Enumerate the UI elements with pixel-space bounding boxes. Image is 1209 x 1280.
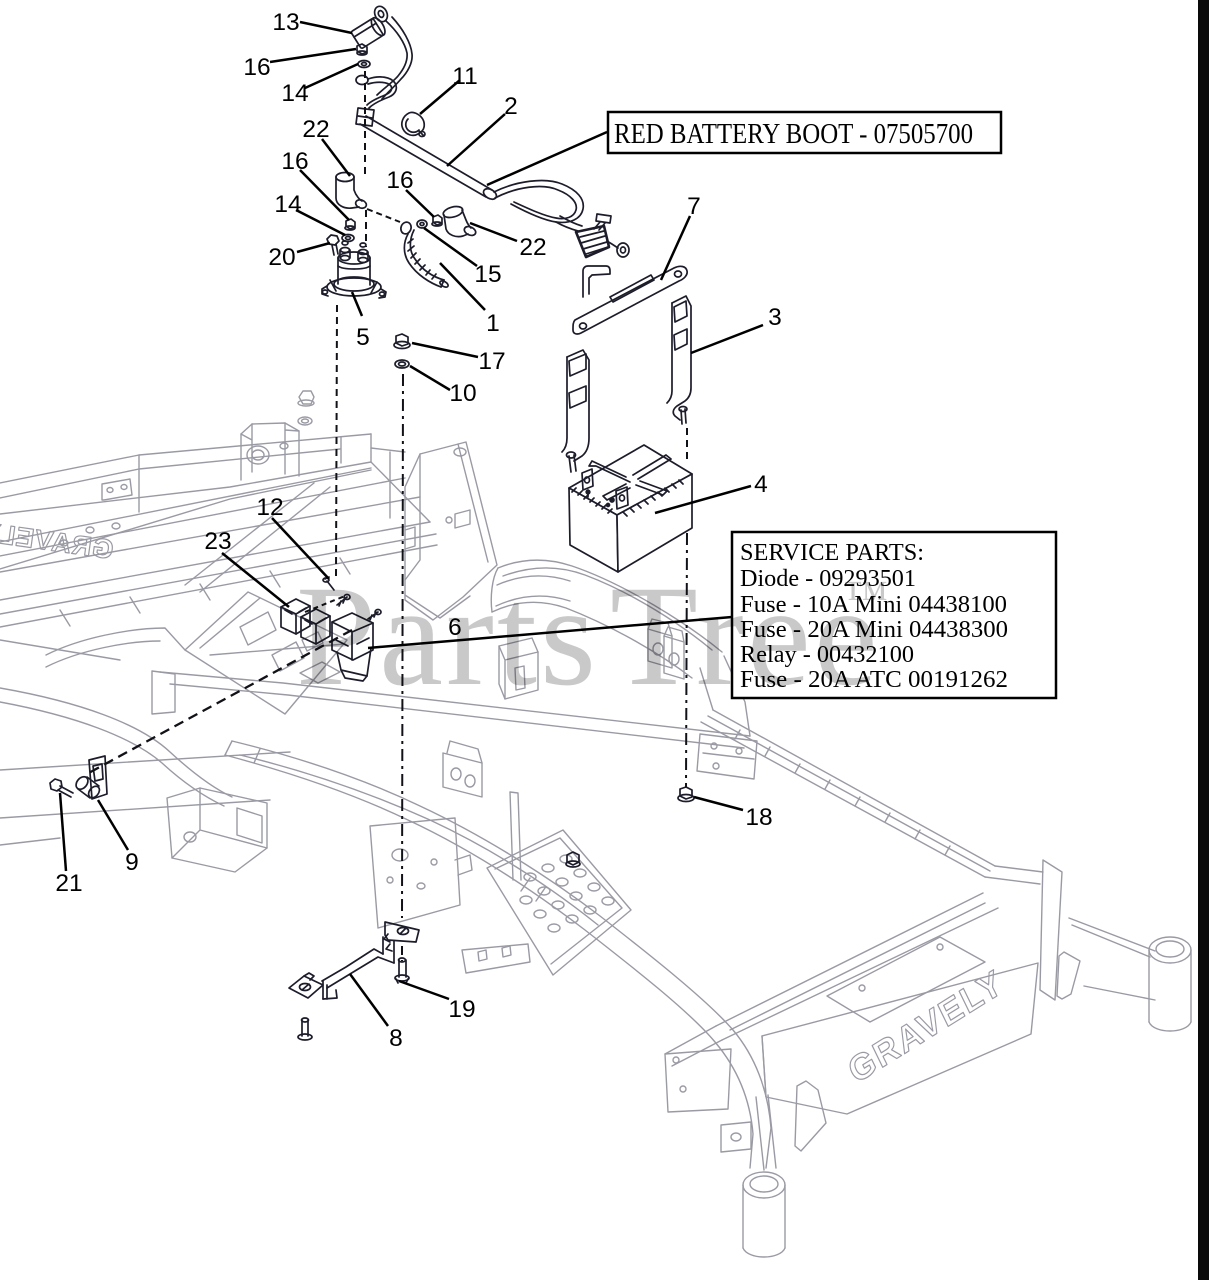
svg-text:11: 11 [452, 63, 477, 90]
svg-text:™: ™ [843, 571, 888, 622]
svg-text:22: 22 [302, 116, 329, 143]
svg-text:4: 4 [754, 471, 768, 498]
svg-text:RED BATTERY BOOT - 07505700: RED BATTERY BOOT - 07505700 [614, 118, 973, 150]
svg-text:10: 10 [449, 380, 476, 407]
svg-text:20: 20 [268, 244, 295, 271]
svg-text:8: 8 [389, 1025, 403, 1052]
svg-text:21: 21 [55, 870, 82, 897]
svg-text:13: 13 [272, 9, 299, 36]
svg-text:3: 3 [768, 304, 782, 331]
svg-text:Parts: Parts [296, 557, 599, 716]
svg-text:15: 15 [474, 261, 501, 288]
svg-text:16: 16 [281, 148, 308, 175]
svg-text:19: 19 [448, 996, 475, 1023]
svg-text:Tree: Tree [610, 557, 881, 716]
svg-text:18: 18 [745, 804, 772, 831]
svg-text:16: 16 [386, 167, 413, 194]
svg-text:1: 1 [486, 310, 500, 337]
svg-text:23: 23 [204, 528, 231, 555]
svg-text:22: 22 [519, 234, 546, 261]
svg-text:16: 16 [243, 54, 270, 81]
svg-text:2: 2 [504, 93, 518, 120]
svg-text:17: 17 [478, 348, 505, 375]
svg-text:7: 7 [687, 193, 701, 220]
svg-text:12: 12 [256, 494, 283, 521]
svg-text:9: 9 [125, 849, 139, 876]
svg-text:14: 14 [274, 191, 301, 218]
svg-text:5: 5 [356, 324, 370, 351]
svg-text:14: 14 [281, 80, 308, 107]
